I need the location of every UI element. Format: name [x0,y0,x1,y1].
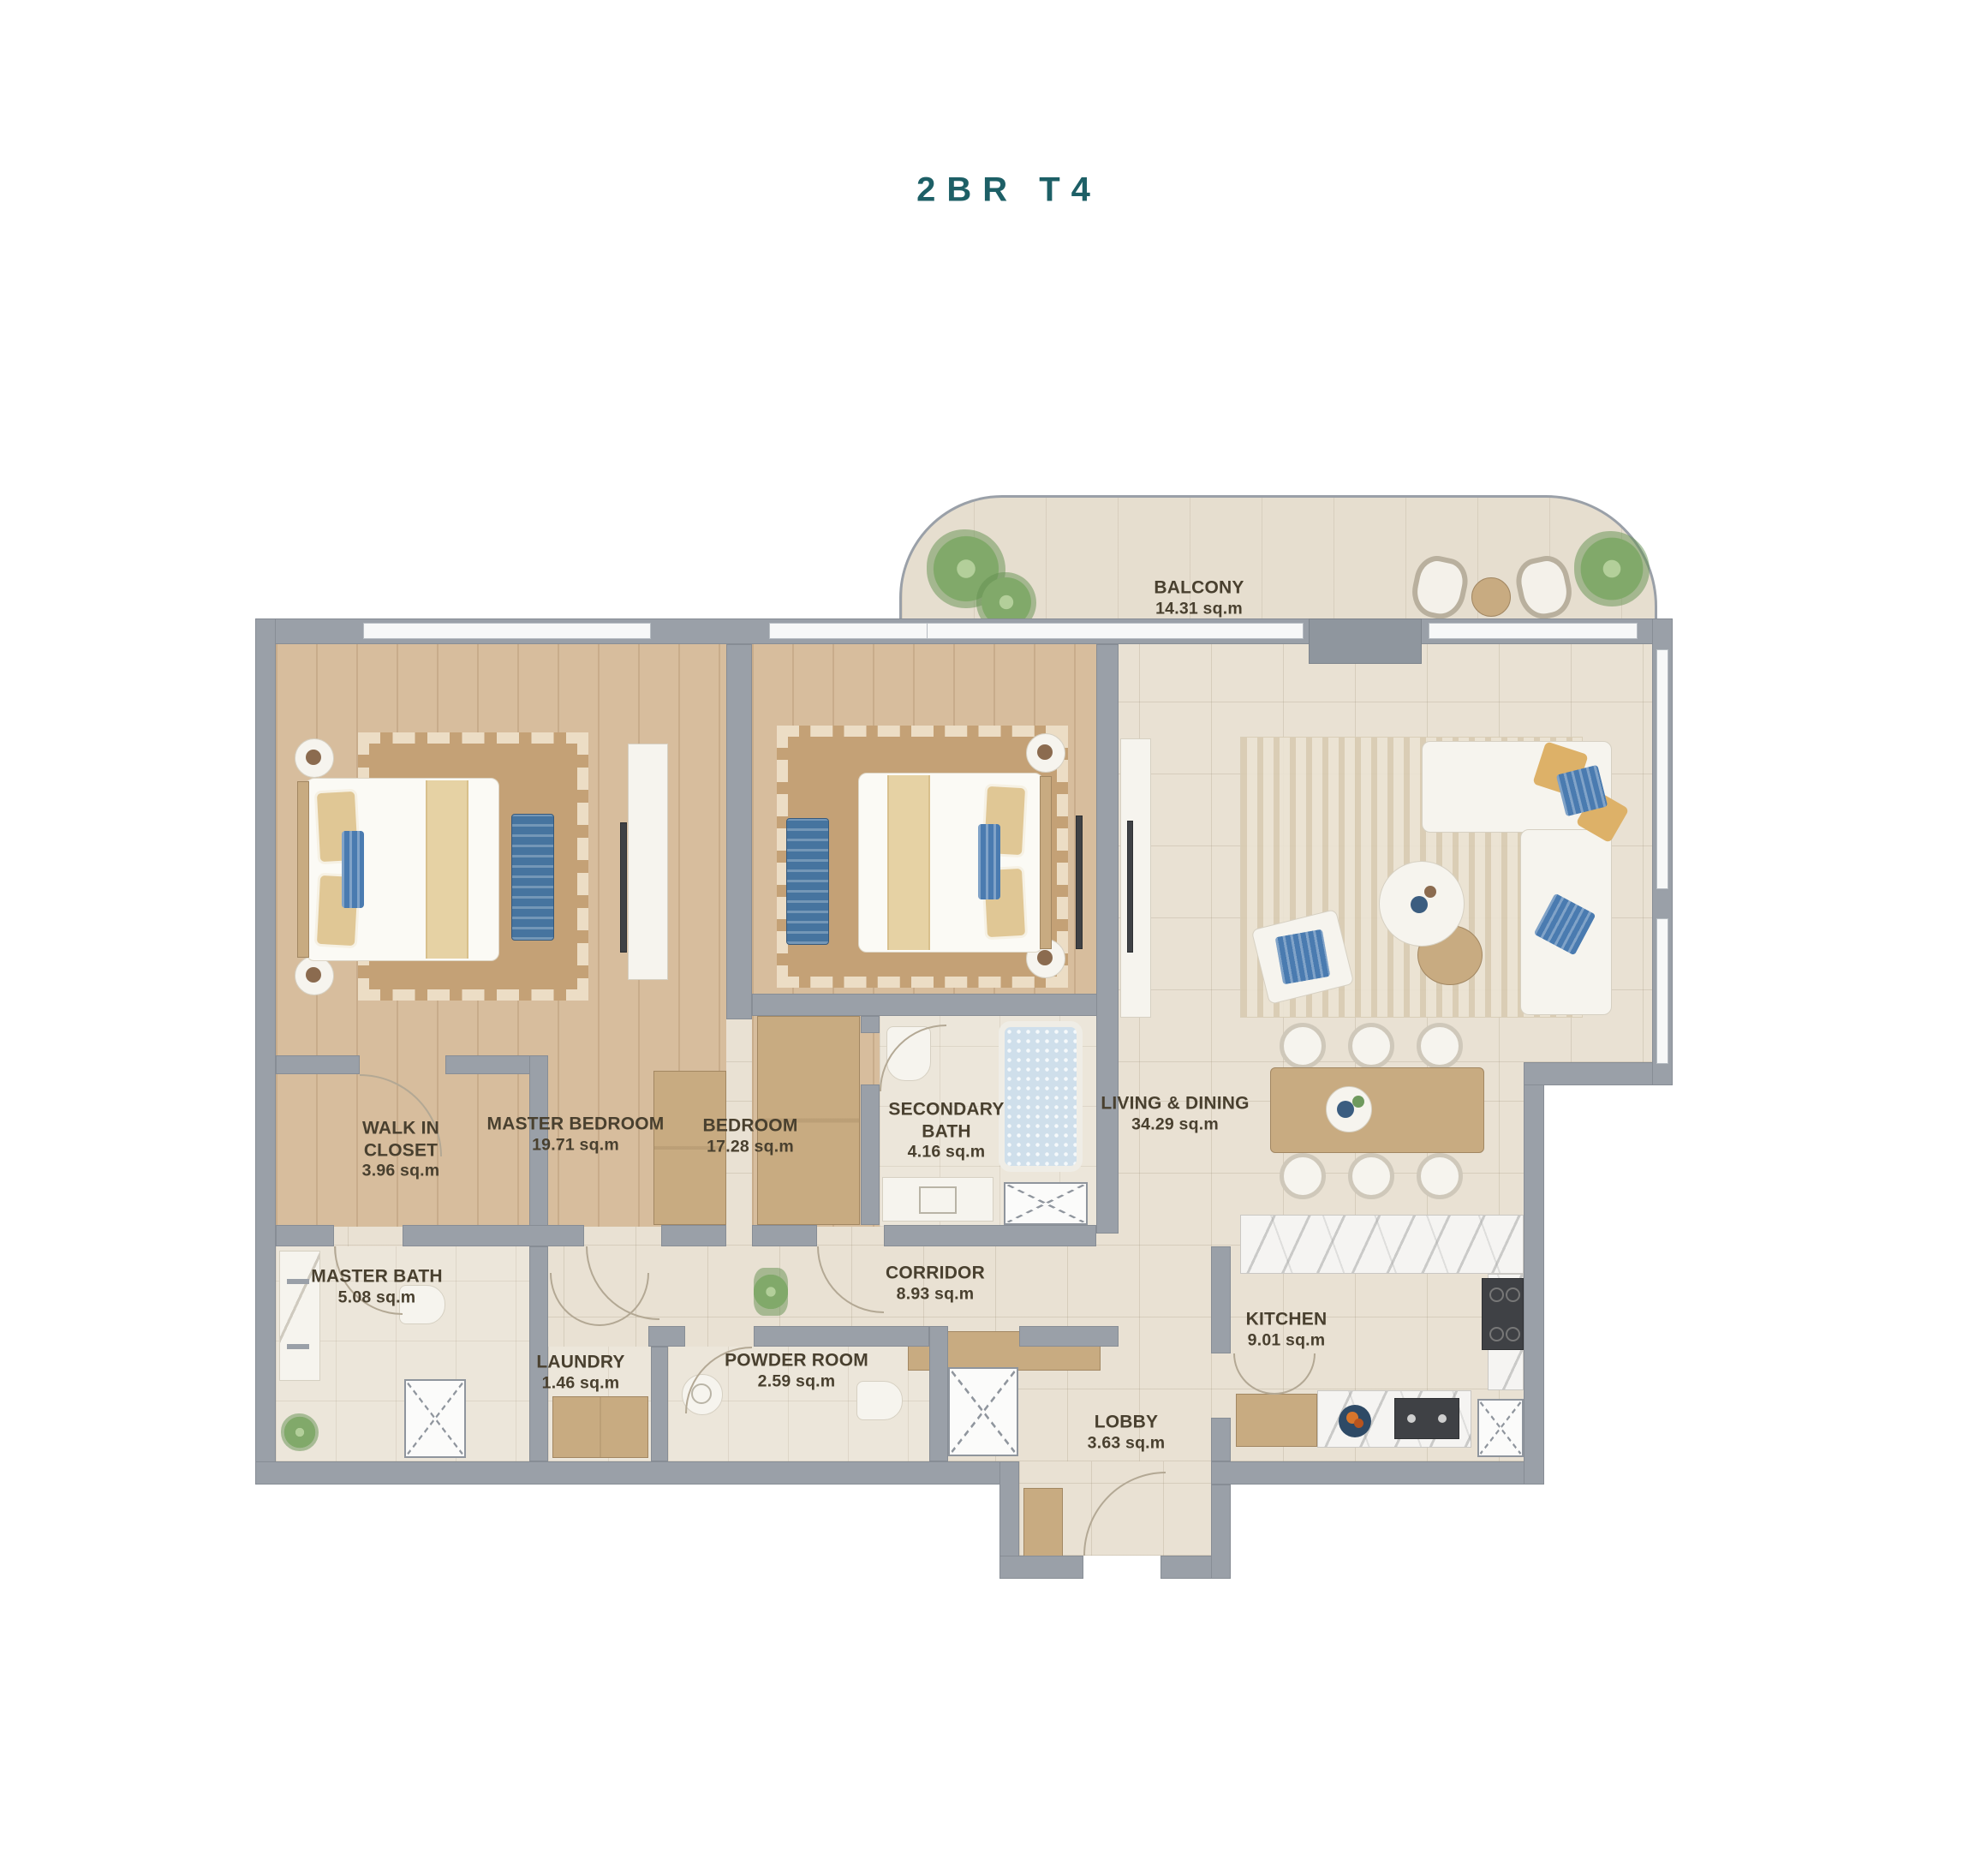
wall [255,1461,1019,1485]
room-label-master-bedroom: MASTER BEDROOM 19.71 sq.m [481,1113,670,1155]
laundry-counter-icon [552,1396,648,1458]
wall [403,1225,584,1246]
wall [1211,1418,1231,1461]
wall [1211,1461,1544,1485]
shaft-x-icon [404,1379,466,1458]
room-label-walk-in-closet: WALK IN CLOSET 3.96 sq.m [345,1118,456,1182]
balcony-table-icon [1471,577,1511,617]
shaft-x-icon [1004,1182,1088,1225]
wall [276,1225,334,1246]
stove-icon [1482,1278,1524,1350]
window [1656,649,1668,889]
side-table-icon [295,738,334,778]
wall [1019,1326,1119,1347]
wall [754,1326,929,1347]
room-label-secondary-bath: SECONDARY BATH 4.16 sq.m [869,1099,1023,1163]
bench-icon [511,814,554,941]
wall [1309,618,1422,664]
wall [651,1347,668,1461]
plant-icon [754,1268,788,1316]
palm-icon [1574,531,1650,606]
dining-chair-icon [1280,1023,1326,1069]
bedroom-bed-icon [858,773,1052,953]
floor-plan-canvas: 2BR T4 [0,0,1963,1876]
balcony-door-window [1429,623,1638,639]
room-label-master-bath: MASTER BATH 5.08 sq.m [295,1265,458,1307]
wall [861,1016,880,1033]
wall [929,1326,948,1461]
wall [726,644,752,1019]
wall [1524,1062,1673,1085]
wall [999,1556,1083,1579]
dining-chair-icon [1417,1153,1463,1199]
window [363,623,651,639]
tv-icon [1127,821,1133,953]
room-label-kitchen: KITCHEN 9.01 sq.m [1226,1308,1346,1350]
wall [752,994,1119,1016]
vanity-icon [882,1177,993,1222]
master-bed-icon [297,778,499,961]
sink-icon [1394,1398,1459,1439]
side-table-icon [295,956,334,995]
coffee-table-icon [1379,861,1465,947]
wall [1211,1485,1231,1579]
tv-console-icon [1120,738,1151,1018]
shaft-x-icon [948,1367,1018,1456]
side-table-icon [1026,733,1065,773]
dining-chair-icon [1417,1023,1463,1069]
page-title: 2BR T4 [916,171,1101,210]
wall [1096,644,1119,1234]
fruit-bowl-icon [1339,1405,1371,1437]
wall [752,1225,817,1246]
tv-icon [620,822,627,953]
wall [1524,1062,1544,1485]
bench-icon [786,818,829,945]
dining-chair-icon [1348,1023,1394,1069]
centerpiece-icon [1326,1086,1372,1132]
room-label-bedroom: BEDROOM 17.28 sq.m [686,1114,814,1156]
wall [884,1225,1096,1246]
room-label-living-dining: LIVING & DINING 34.29 sq.m [1089,1092,1261,1134]
kitchen-cabinet-icon [1236,1394,1317,1447]
wall [648,1326,685,1347]
plant-icon [281,1413,319,1451]
room-label-balcony: BALCONY 14.31 sq.m [1105,577,1293,618]
room-label-corridor: CORRIDOR 8.93 sq.m [867,1262,1004,1304]
room-label-powder-room: POWDER ROOM 2.59 sq.m [719,1349,874,1391]
kitchen-counter-icon [1240,1215,1524,1274]
balcony-door-window [927,623,1304,639]
shaft-x-icon [1477,1399,1524,1457]
room-label-laundry: LAUNDRY 1.46 sq.m [525,1351,636,1393]
wall [255,618,276,1485]
dining-table-icon [1270,1067,1484,1153]
wall [661,1225,726,1246]
dining-chair-icon [1348,1153,1394,1199]
dining-chair-icon [1280,1153,1326,1199]
tv-icon [1076,816,1083,949]
lobby-closet-icon [1023,1488,1063,1556]
window [1656,918,1668,1064]
wall [276,1055,360,1074]
dresser-icon [628,744,668,980]
room-label-lobby: LOBBY 3.63 sq.m [1071,1411,1182,1453]
